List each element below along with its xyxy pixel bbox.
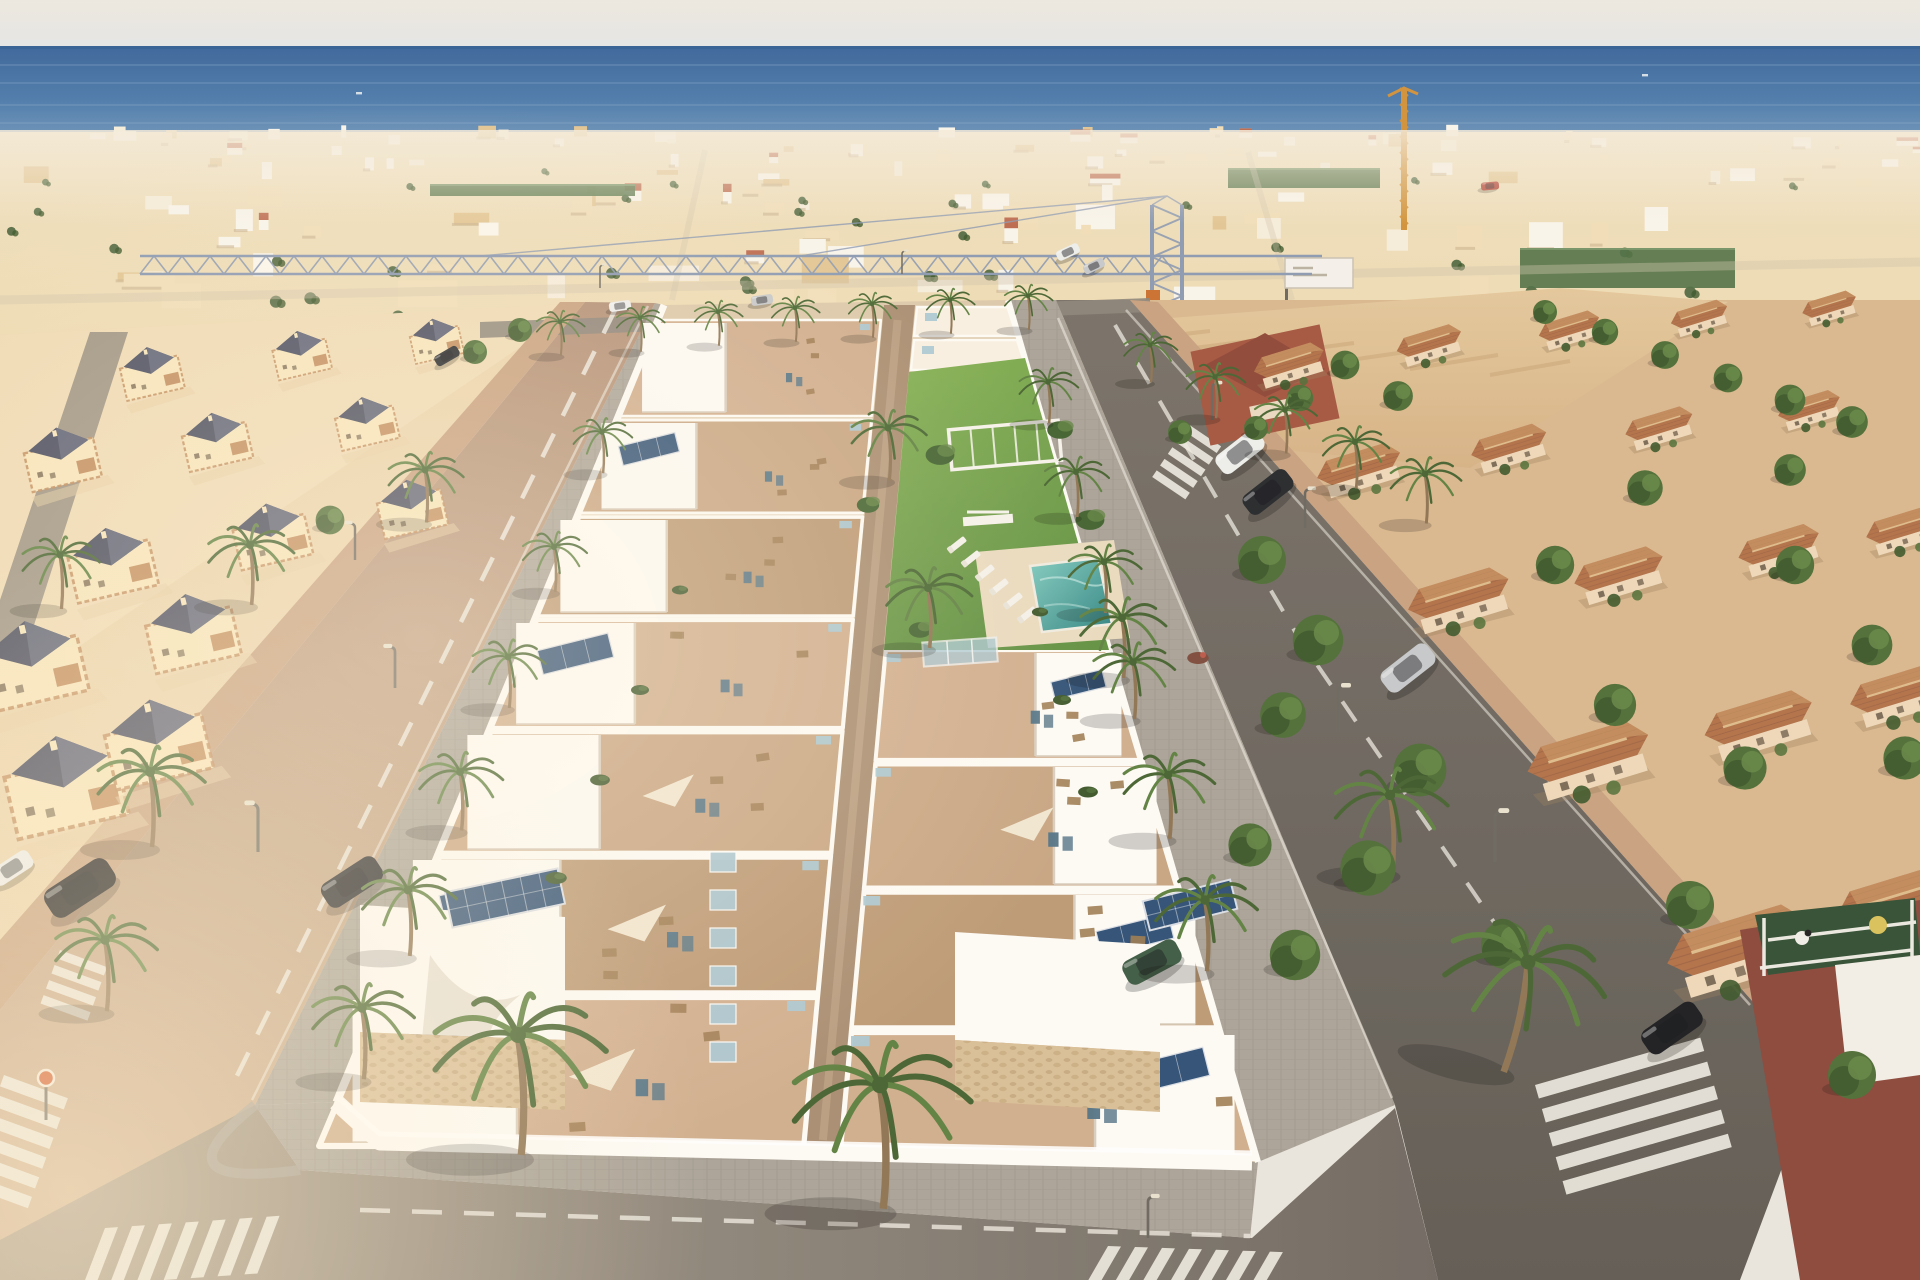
aerial-drone-photo [0, 0, 1920, 1280]
scene-svg [0, 0, 1920, 1280]
warm-tint [0, 0, 1920, 1280]
light-overlays [0, 0, 1920, 1280]
